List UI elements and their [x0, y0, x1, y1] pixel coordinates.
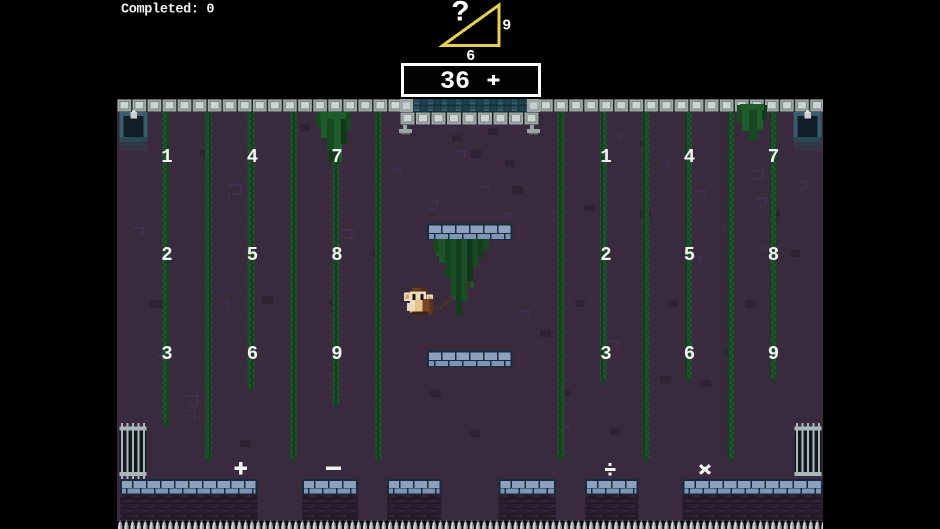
svg-text:9: 9 [768, 343, 779, 365]
svg-text:7: 7 [331, 146, 342, 168]
svg-text:6: 6 [466, 48, 475, 65]
svg-text:9: 9 [331, 343, 342, 365]
svg-text:6: 6 [684, 343, 695, 365]
svg-text:2: 2 [161, 244, 172, 266]
svg-text:?: ? [451, 0, 469, 31]
svg-text:4: 4 [684, 146, 695, 168]
svg-text:6: 6 [247, 343, 258, 365]
svg-text:1: 1 [600, 146, 611, 168]
svg-text:1: 1 [161, 146, 172, 168]
svg-text:5: 5 [684, 244, 695, 266]
svg-text:36: 36 [440, 67, 470, 96]
svg-text:3: 3 [161, 343, 172, 365]
svg-text:4: 4 [247, 146, 258, 168]
svg-text:9: 9 [502, 18, 511, 35]
svg-text:2: 2 [600, 244, 611, 266]
svg-text:3: 3 [600, 343, 611, 365]
svg-text:5: 5 [247, 244, 258, 266]
svg-text:Completed: 0: Completed: 0 [121, 2, 215, 17]
svg-text:8: 8 [331, 244, 342, 266]
svg-text:7: 7 [768, 146, 779, 168]
svg-text:8: 8 [768, 244, 779, 266]
